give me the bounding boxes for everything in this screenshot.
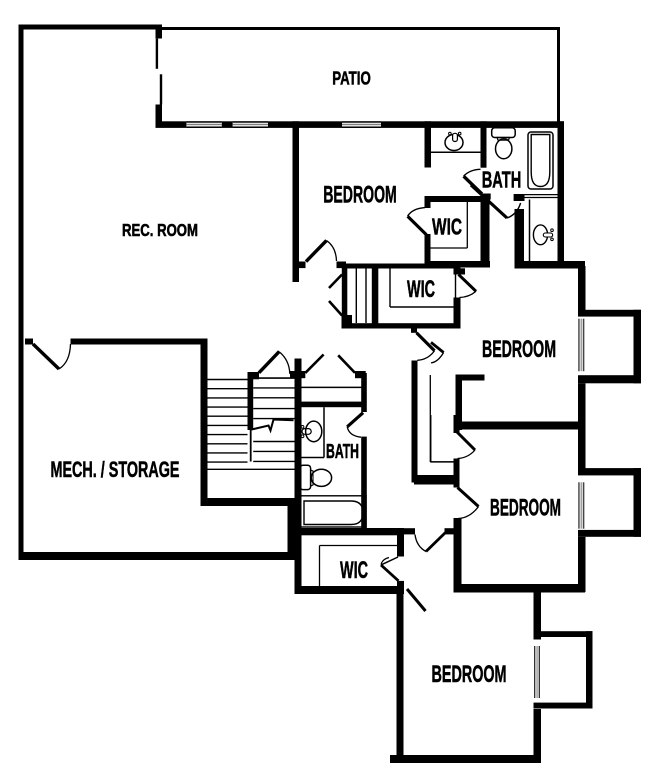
svg-text:BEDROOM: BEDROOM bbox=[490, 495, 561, 522]
svg-text:WIC: WIC bbox=[407, 276, 435, 303]
svg-text:WIC: WIC bbox=[340, 557, 368, 584]
svg-text:BEDROOM: BEDROOM bbox=[323, 182, 397, 209]
svg-text:WIC: WIC bbox=[432, 214, 462, 240]
svg-text:REC. ROOM: REC. ROOM bbox=[122, 220, 198, 240]
svg-text:BATH: BATH bbox=[482, 167, 522, 193]
svg-text:BEDROOM: BEDROOM bbox=[432, 661, 507, 688]
svg-text:MECH. / STORAGE: MECH. / STORAGE bbox=[51, 457, 180, 482]
svg-text:BATH: BATH bbox=[326, 440, 359, 463]
svg-text:BEDROOM: BEDROOM bbox=[482, 336, 556, 363]
svg-text:PATIO: PATIO bbox=[332, 69, 371, 89]
